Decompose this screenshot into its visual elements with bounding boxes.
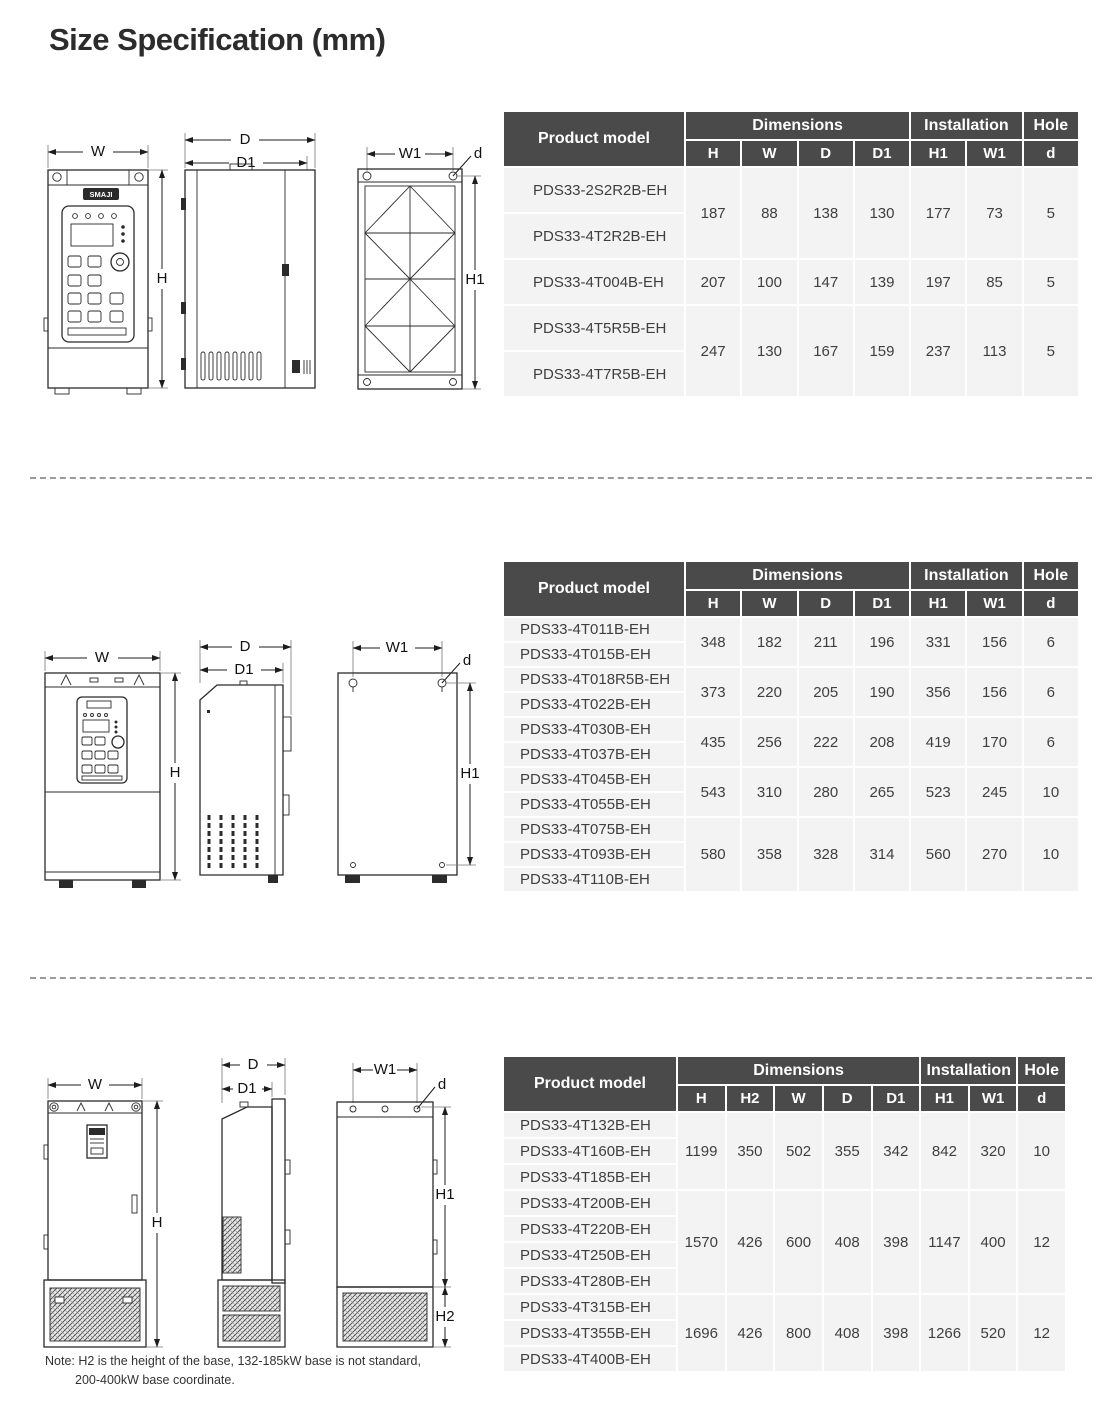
dim-label-h: H	[152, 1214, 163, 1231]
mounting-hole	[382, 1106, 388, 1112]
size-value-cell: 207	[686, 260, 740, 304]
size-value-cell: 159	[855, 306, 909, 396]
base-grille	[44, 1280, 146, 1347]
size-value-cell: 408	[824, 1191, 871, 1293]
product-model-cell: PDS33-4T400B-EH	[504, 1347, 676, 1371]
size-value-cell: 10	[1018, 1113, 1065, 1189]
dim-label-d-hole: d	[463, 652, 471, 669]
dim-label-h1: H1	[465, 271, 484, 288]
product-model-cell: PDS33-4T355B-EH	[504, 1321, 676, 1345]
hanger-hole	[61, 675, 71, 685]
dim-label-w: W	[95, 649, 110, 666]
col-group-hole: Hole	[1024, 562, 1078, 589]
footnote-line1: Note: H2 is the height of the base, 132-…	[45, 1352, 485, 1371]
size-value-cell: 6	[1024, 668, 1078, 716]
col-header: H1	[921, 1086, 968, 1111]
col-group-hole: Hole	[1018, 1057, 1065, 1084]
size-value-cell: 247	[686, 306, 740, 396]
size-value-cell: 265	[855, 768, 909, 816]
size-value-cell: 73	[967, 168, 1021, 258]
size-value-cell: 600	[775, 1191, 822, 1293]
door-handle	[132, 1195, 137, 1213]
base-grille	[337, 1287, 433, 1347]
keypad-knob	[111, 253, 129, 271]
size-value-cell: 156	[967, 668, 1021, 716]
size-value-cell: 170	[967, 718, 1021, 766]
col-header: d	[1018, 1086, 1065, 1111]
size-value-cell: 355	[824, 1113, 871, 1189]
size-value-cell: 220	[742, 668, 796, 716]
size-value-cell: 435	[686, 718, 740, 766]
dim-label-h2: H2	[435, 1308, 454, 1325]
col-group-dimensions: Dimensions	[678, 1057, 919, 1084]
size-value-cell: 1147	[921, 1191, 968, 1293]
size-value-cell: 331	[911, 618, 965, 666]
size-value-cell: 147	[799, 260, 853, 304]
size-value-cell: 5	[1024, 168, 1078, 258]
product-model-cell: PDS33-4T045B-EH	[504, 768, 684, 791]
product-model-cell: PDS33-4T093B-EH	[504, 843, 684, 866]
size-value-cell: 426	[727, 1295, 774, 1371]
col-header: D1	[855, 591, 909, 616]
footnote-line2: 200-400kW base coordinate.	[45, 1371, 485, 1390]
spec-row: PDS33-4T132B-EH119935050235534284232010	[504, 1113, 1065, 1137]
col-header: W	[742, 141, 796, 166]
col-header: W1	[967, 141, 1021, 166]
dim-label-w1: W1	[374, 1061, 397, 1078]
dim-label-w1: W1	[399, 145, 422, 162]
size-value-cell: 350	[727, 1113, 774, 1189]
dim-label-w: W	[91, 143, 106, 160]
size-table-small: Product model Dimensions Installation Ho…	[502, 110, 1080, 398]
back-view-drawing: W1 d H1	[338, 639, 480, 883]
size-value-cell: 256	[742, 718, 796, 766]
col-header: D	[824, 1086, 871, 1111]
size-value-cell: 10	[1024, 768, 1078, 816]
dim-label-d1: D1	[236, 154, 255, 171]
front-view-drawing: W H	[45, 649, 181, 888]
size-value-cell: 560	[911, 818, 965, 891]
size-value-cell: 356	[911, 668, 965, 716]
spec-row: PDS33-2S2R2B-EH18788138130177735	[504, 168, 1078, 212]
foot	[345, 875, 360, 883]
col-header: H1	[911, 141, 965, 166]
size-value-cell: 130	[855, 168, 909, 258]
spec-row: PDS33-4T075B-EH58035832831456027010	[504, 818, 1078, 841]
dim-label-d1: D1	[237, 1080, 256, 1097]
product-model-cell: PDS33-4T220B-EH	[504, 1217, 676, 1241]
col-header-product-model: Product model	[504, 1057, 676, 1111]
size-value-cell: 842	[921, 1113, 968, 1189]
size-value-cell: 100	[742, 260, 796, 304]
lifting-ring	[50, 1103, 58, 1111]
col-header: D1	[873, 1086, 920, 1111]
foot	[268, 875, 278, 883]
product-model-cell: PDS33-4T030B-EH	[504, 718, 684, 741]
size-value-cell: 113	[967, 306, 1021, 396]
product-model-cell: PDS33-4T075B-EH	[504, 818, 684, 841]
size-value-cell: 580	[686, 818, 740, 891]
terminal-block	[283, 717, 291, 751]
size-value-cell: 358	[742, 818, 796, 891]
size-value-cell: 211	[799, 618, 853, 666]
keypad	[87, 1125, 107, 1158]
spec-row: PDS33-4T004B-EH207100147139197855	[504, 260, 1078, 304]
size-value-cell: 196	[855, 618, 909, 666]
size-value-cell: 520	[970, 1295, 1017, 1371]
size-value-cell: 88	[742, 168, 796, 258]
mounting-hole	[135, 173, 143, 181]
size-value-cell: 523	[911, 768, 965, 816]
size-value-cell: 10	[1024, 818, 1078, 891]
product-model-cell: PDS33-4T132B-EH	[504, 1113, 676, 1137]
size-value-cell: 208	[855, 718, 909, 766]
size-value-cell: 6	[1024, 718, 1078, 766]
dim-label-d1: D1	[234, 661, 253, 678]
product-model-cell: PDS33-4T110B-EH	[504, 868, 684, 891]
col-header-product-model: Product model	[504, 562, 684, 616]
size-table-medium: Product model Dimensions Installation Ho…	[502, 560, 1080, 893]
size-value-cell: 342	[873, 1113, 920, 1189]
col-header-product-model: Product model	[504, 112, 684, 166]
col-group-installation: Installation	[911, 562, 1022, 589]
size-value-cell: 1199	[678, 1113, 725, 1189]
col-group-dimensions: Dimensions	[686, 112, 909, 139]
col-header: d	[1024, 141, 1078, 166]
product-model-cell: PDS33-4T5R5B-EH	[504, 306, 684, 350]
keypad-slot	[68, 328, 126, 335]
section-divider	[30, 977, 1092, 979]
product-model-cell: PDS33-4T037B-EH	[504, 743, 684, 766]
side-view-drawing: D D1	[200, 638, 291, 883]
base-grille	[218, 1280, 285, 1347]
keypad-display	[83, 720, 109, 732]
product-model-cell: PDS33-4T185B-EH	[504, 1165, 676, 1189]
x-brace-pattern	[365, 186, 455, 372]
dim-label-h1: H1	[460, 765, 479, 782]
spec-row: PDS33-4T011B-EH3481822111963311566	[504, 618, 1078, 641]
size-value-cell: 310	[742, 768, 796, 816]
col-header: H	[686, 591, 740, 616]
dim-label-d-hole: d	[438, 1076, 446, 1093]
col-header: d	[1024, 591, 1078, 616]
product-model-cell: PDS33-4T2R2B-EH	[504, 214, 684, 258]
size-value-cell: 314	[855, 818, 909, 891]
col-header: H	[686, 141, 740, 166]
page-title: Size Specification (mm)	[49, 22, 385, 58]
foot	[132, 880, 146, 888]
product-model-cell: PDS33-4T250B-EH	[504, 1243, 676, 1267]
size-value-cell: 320	[970, 1113, 1017, 1189]
dim-label-d-hole: d	[474, 145, 482, 162]
product-model-cell: PDS33-2S2R2B-EH	[504, 168, 684, 212]
product-model-cell: PDS33-4T7R5B-EH	[504, 352, 684, 396]
mounting-hole	[449, 172, 457, 180]
lifting-ring	[132, 1103, 140, 1111]
vent-slats	[209, 815, 257, 870]
brand-logo-text: SMAJI	[90, 190, 113, 199]
col-header: W	[742, 591, 796, 616]
size-value-cell: 138	[799, 168, 853, 258]
hanger-hole	[134, 675, 144, 685]
product-model-cell: PDS33-4T004B-EH	[504, 260, 684, 304]
product-model-cell: PDS33-4T280B-EH	[504, 1269, 676, 1293]
product-model-cell: PDS33-4T055B-EH	[504, 793, 684, 816]
keypad-slot	[82, 776, 122, 780]
drawing-large-cabinet: W H	[35, 1045, 495, 1365]
col-header: H1	[911, 591, 965, 616]
size-value-cell: 190	[855, 668, 909, 716]
size-value-cell: 6	[1024, 618, 1078, 666]
spec-sheet-page: Size Specification (mm) W SMAJI	[0, 0, 1109, 1409]
col-header: D1	[855, 141, 909, 166]
product-model-cell: PDS33-4T011B-EH	[504, 618, 684, 641]
section-divider	[30, 477, 1092, 479]
col-group-installation: Installation	[911, 112, 1022, 139]
size-value-cell: 85	[967, 260, 1021, 304]
size-value-cell: 543	[686, 768, 740, 816]
size-value-cell: 328	[799, 818, 853, 891]
product-model-cell: PDS33-4T315B-EH	[504, 1295, 676, 1319]
size-value-cell: 408	[824, 1295, 871, 1371]
col-group-hole: Hole	[1024, 112, 1078, 139]
size-value-cell: 156	[967, 618, 1021, 666]
dim-label-h: H	[157, 270, 168, 287]
product-model-cell: PDS33-4T022B-EH	[504, 693, 684, 716]
mounting-hole	[363, 172, 371, 180]
size-value-cell: 1696	[678, 1295, 725, 1371]
col-header: W1	[967, 591, 1021, 616]
vent-slats	[201, 352, 261, 380]
mounting-hole	[349, 679, 357, 687]
col-header: D	[799, 141, 853, 166]
size-table-large: Product model Dimensions Installation Ho…	[502, 1055, 1067, 1373]
foot	[432, 875, 447, 883]
spec-row: PDS33-4T030B-EH4352562222084191706	[504, 718, 1078, 741]
size-value-cell: 373	[686, 668, 740, 716]
size-value-cell: 800	[775, 1295, 822, 1371]
footnote: Note: H2 is the height of the base, 132-…	[45, 1352, 485, 1391]
col-group-installation: Installation	[921, 1057, 1016, 1084]
product-model-cell: PDS33-4T200B-EH	[504, 1191, 676, 1215]
col-header: H2	[727, 1086, 774, 1111]
product-model-cell: PDS33-4T160B-EH	[504, 1139, 676, 1163]
size-value-cell: 5	[1024, 306, 1078, 396]
size-value-cell: 398	[873, 1191, 920, 1293]
size-value-cell: 182	[742, 618, 796, 666]
col-header: W	[775, 1086, 822, 1111]
side-view-drawing: D D1	[218, 1056, 290, 1347]
dim-label-w1: W1	[386, 639, 409, 656]
size-value-cell: 419	[911, 718, 965, 766]
size-value-cell: 139	[855, 260, 909, 304]
keypad-knob	[112, 736, 124, 748]
spec-row: PDS33-4T315B-EH1696426800408398126652012	[504, 1295, 1065, 1319]
dim-label-w: W	[88, 1076, 103, 1093]
product-model-cell: PDS33-4T018R5B-EH	[504, 668, 684, 691]
dim-label-h1: H1	[435, 1186, 454, 1203]
size-value-cell: 398	[873, 1295, 920, 1371]
dim-label-d: D	[240, 131, 251, 148]
col-header: D	[799, 591, 853, 616]
size-value-cell: 270	[967, 818, 1021, 891]
size-value-cell: 205	[799, 668, 853, 716]
col-group-dimensions: Dimensions	[686, 562, 909, 589]
size-value-cell: 5	[1024, 260, 1078, 304]
size-value-cell: 177	[911, 168, 965, 258]
front-view-drawing: W SMAJI	[44, 143, 168, 394]
dim-label-h: H	[170, 764, 181, 781]
size-value-cell: 237	[911, 306, 965, 396]
spec-row: PDS33-4T5R5B-EH2471301671592371135	[504, 306, 1078, 350]
mounting-hole	[53, 173, 61, 181]
size-value-cell: 12	[1018, 1295, 1065, 1371]
size-value-cell: 502	[775, 1113, 822, 1189]
keypad	[77, 697, 127, 783]
size-value-cell: 12	[1018, 1191, 1065, 1293]
keypad	[62, 206, 134, 342]
size-value-cell: 187	[686, 168, 740, 258]
foot	[59, 880, 73, 888]
back-view-drawing: W1 d H1 H2	[337, 1061, 455, 1347]
dim-label-d: D	[248, 1056, 259, 1073]
dim-label-d: D	[240, 638, 251, 655]
col-header: H	[678, 1086, 725, 1111]
spec-row: PDS33-4T018R5B-EH3732202051903561566	[504, 668, 1078, 691]
size-value-cell: 130	[742, 306, 796, 396]
size-value-cell: 1266	[921, 1295, 968, 1371]
mounting-hole	[350, 1106, 356, 1112]
spec-row: PDS33-4T200B-EH1570426600408398114740012	[504, 1191, 1065, 1215]
keypad-display	[71, 224, 113, 246]
col-header: W1	[970, 1086, 1017, 1111]
back-view-drawing: W1 d H1	[358, 145, 485, 389]
size-value-cell: 1570	[678, 1191, 725, 1293]
size-value-cell: 280	[799, 768, 853, 816]
drawing-medium-drive: W H	[35, 625, 495, 925]
drawing-small-drive: W SMAJI	[35, 112, 505, 412]
size-value-cell: 400	[970, 1191, 1017, 1293]
vent-grille	[223, 1217, 241, 1273]
product-model-cell: PDS33-4T015B-EH	[504, 643, 684, 666]
size-value-cell: 197	[911, 260, 965, 304]
front-view-drawing: W H	[44, 1076, 163, 1347]
size-value-cell: 222	[799, 718, 853, 766]
side-view-drawing: D D1	[181, 131, 315, 388]
size-value-cell: 348	[686, 618, 740, 666]
size-value-cell: 426	[727, 1191, 774, 1293]
size-value-cell: 167	[799, 306, 853, 396]
spec-row: PDS33-4T045B-EH54331028026552324510	[504, 768, 1078, 791]
size-value-cell: 245	[967, 768, 1021, 816]
